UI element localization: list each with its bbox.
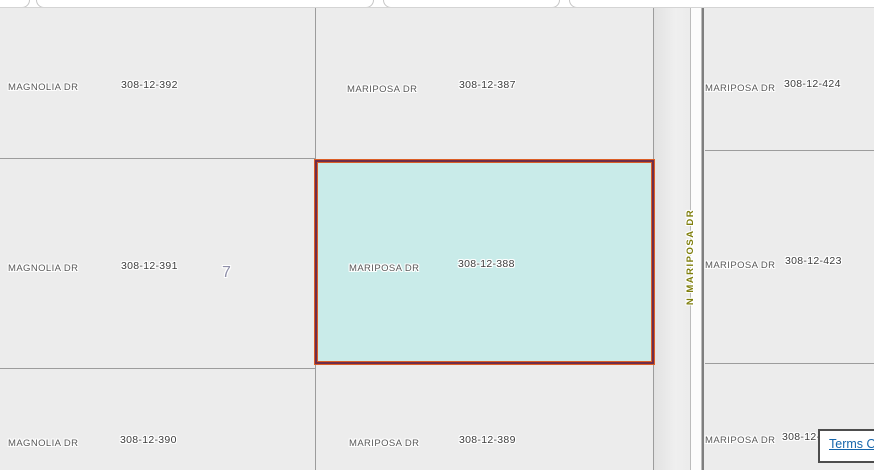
parcel-region-308-12-390[interactable]: [0, 369, 315, 470]
terms-link[interactable]: Terms Of: [829, 437, 874, 451]
road-edge-line: [702, 8, 704, 470]
apn-label: 308-12-387: [459, 79, 516, 91]
apn-label: 308-12-423: [785, 255, 842, 267]
street-label: MARIPOSA DR: [349, 263, 419, 274]
street-label: MARIPOSA DR: [349, 438, 419, 449]
street-label: MAGNOLIA DR: [8, 82, 78, 93]
apn-label: 308-12-388: [458, 258, 515, 270]
terms-box: Terms Of: [818, 429, 874, 463]
section-number-label: 7: [222, 264, 231, 282]
apn-label: 308-12-391: [121, 260, 178, 272]
street-label: MAGNOLIA DR: [8, 438, 78, 449]
map-top-border: [0, 7, 874, 8]
apn-label: 308-12-389: [459, 434, 516, 446]
road-name-label: N MARIPOSA DR: [685, 182, 699, 332]
street-label: MARIPOSA DR: [705, 83, 775, 94]
apn-label: 308-12-: [782, 431, 820, 443]
apn-label: 308-12-390: [120, 434, 177, 446]
apn-label: 308-12-392: [121, 79, 178, 91]
parcel-map-viewport: N MARIPOSA DR MAGNOLIA DR 308-12-392 MAR…: [0, 0, 874, 470]
street-label: MAGNOLIA DR: [8, 263, 78, 274]
street-label: MARIPOSA DR: [705, 260, 775, 271]
apn-label: 308-12-424: [784, 78, 841, 90]
parcel-region-308-12-389[interactable]: [316, 365, 653, 470]
street-label: MARIPOSA DR: [705, 435, 775, 446]
street-label: MARIPOSA DR: [347, 84, 417, 95]
